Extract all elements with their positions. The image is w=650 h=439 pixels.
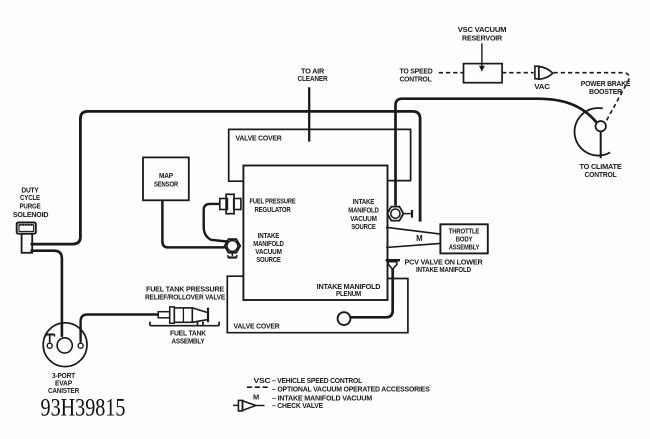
svg-text:M: M [253, 393, 259, 402]
svg-text:BOOSTER: BOOSTER [589, 87, 623, 96]
svg-text:RESERVOIR: RESERVOIR [462, 34, 503, 43]
svg-text:CLEANER: CLEANER [298, 74, 329, 83]
svg-text:VSC: VSC [254, 376, 272, 385]
svg-text:M: M [416, 234, 422, 243]
svg-text:CONTROL: CONTROL [585, 170, 618, 179]
svg-text:PLENUM: PLENUM [336, 289, 361, 298]
svg-text:INTAKE MANIFOLD: INTAKE MANIFOLD [416, 265, 472, 274]
svg-text:93H39815: 93H39815 [41, 392, 126, 421]
svg-text:ASSEMBLY: ASSEMBLY [172, 337, 205, 346]
svg-text:VALVE COVER: VALVE COVER [234, 321, 281, 330]
svg-text:SOURCE: SOURCE [351, 222, 376, 231]
svg-text:CONTROL: CONTROL [400, 74, 433, 83]
svg-text:– VEHICLE SPEED CONTROL: – VEHICLE SPEED CONTROL [272, 376, 363, 385]
svg-text:SENSOR: SENSOR [154, 180, 179, 189]
svg-text:VALVE COVER: VALVE COVER [236, 134, 283, 143]
svg-text:VAC: VAC [534, 82, 550, 91]
svg-text:REGULATOR: REGULATOR [255, 205, 292, 214]
svg-text:SOURCE: SOURCE [256, 255, 281, 264]
svg-text:SOLENOID: SOLENOID [13, 210, 49, 219]
svg-text:RELIEF/ROLLOVER VALVE: RELIEF/ROLLOVER VALVE [145, 293, 225, 302]
svg-text:– CHECK VALVE: – CHECK VALVE [272, 401, 323, 410]
svg-text:ASSEMBLY: ASSEMBLY [449, 243, 480, 252]
